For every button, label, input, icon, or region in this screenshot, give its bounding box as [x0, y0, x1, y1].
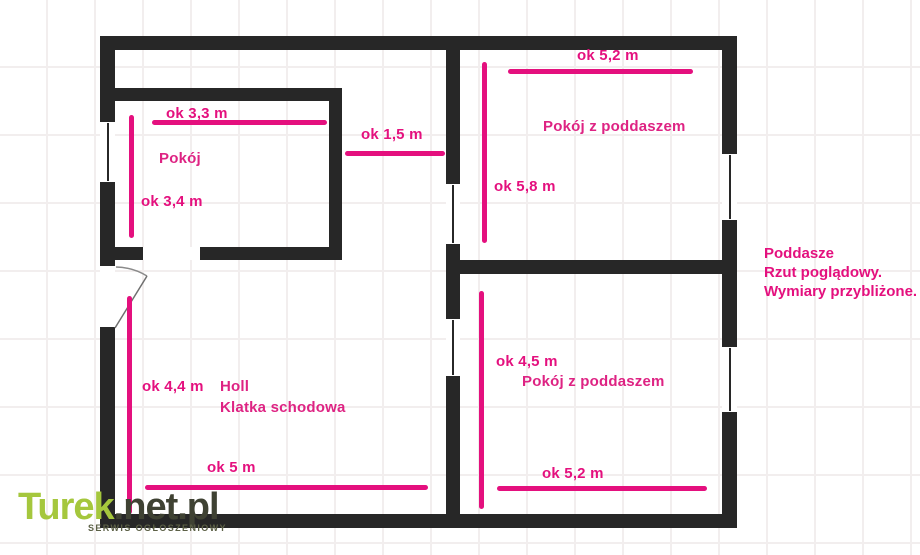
watermark-logo: Turek.net.pl SERWIS OGŁOSZENIOWY: [18, 488, 219, 526]
door-opening-pokoj: [143, 247, 200, 260]
window-right-wall-upper: [722, 152, 737, 222]
dim-line-attic-top-height: [482, 62, 487, 243]
dim-line-passage: [345, 151, 445, 156]
brand-tagline: SERWIS OGŁOSZENIOWY: [88, 524, 227, 533]
dim-label-attic-top-width: ok 5,2 m: [577, 47, 639, 64]
dim-label-attic-bottom-width: ok 5,2 m: [542, 465, 604, 482]
floor-plan: ok 3,3 m Pokój ok 3,4 m ok 1,5 m ok 5,2 …: [0, 0, 920, 555]
dim-line-pokoj-height: [129, 115, 134, 238]
room-label-hall-2: Klatka schodowa: [220, 399, 346, 416]
dim-line-attic-bottom-width: [497, 486, 707, 491]
dim-label-hall-height: ok 4,4 m: [142, 378, 204, 395]
wall-pokoj-top: [107, 88, 342, 101]
wall-outer-top: [100, 36, 737, 50]
wall-right-divider: [446, 260, 737, 274]
window-central-wall-lower: [446, 317, 460, 378]
room-label-pokoj: Pokój: [159, 150, 201, 167]
dim-label-passage: ok 1,5 m: [361, 126, 423, 143]
annotation-line-3: Wymiary przybliżone.: [764, 282, 917, 301]
window-right-wall-lower: [722, 345, 737, 414]
dim-line-hall-height: [127, 296, 132, 514]
annotation-line-2: Rzut poglądowy.: [764, 263, 917, 282]
annotation-line-1: Poddasze: [764, 244, 917, 263]
dim-label-pokoj-width: ok 3,3 m: [166, 105, 228, 122]
window-central-wall-upper: [446, 182, 460, 246]
room-label-hall-1: Holl: [220, 378, 249, 395]
wall-central: [446, 36, 460, 528]
room-label-attic-bottom: Pokój z poddaszem: [522, 373, 665, 390]
dim-label-attic-top-height: ok 5,8 m: [494, 178, 556, 195]
dim-label-hall-width: ok 5 m: [207, 459, 256, 476]
dim-line-attic-top-width: [508, 69, 693, 74]
wall-pokoj-right: [329, 88, 342, 260]
room-label-attic-top: Pokój z poddaszem: [543, 118, 686, 135]
window-left-wall: [100, 120, 115, 184]
dim-label-attic-bottom-height: ok 4,5 m: [496, 353, 558, 370]
brand-suffix: .net.pl: [114, 486, 219, 528]
wall-pokoj-bottom: [100, 247, 342, 260]
dim-label-pokoj-height: ok 3,4 m: [141, 193, 203, 210]
brand-primary: Turek: [18, 486, 114, 528]
door-opening-left-wall: [100, 266, 115, 327]
dim-line-attic-bottom-height: [479, 291, 484, 509]
plan-annotation: Poddasze Rzut poglądowy. Wymiary przybli…: [764, 244, 917, 301]
brand-text: Turek.net.pl: [18, 488, 219, 526]
wall-outer-right: [722, 36, 737, 528]
